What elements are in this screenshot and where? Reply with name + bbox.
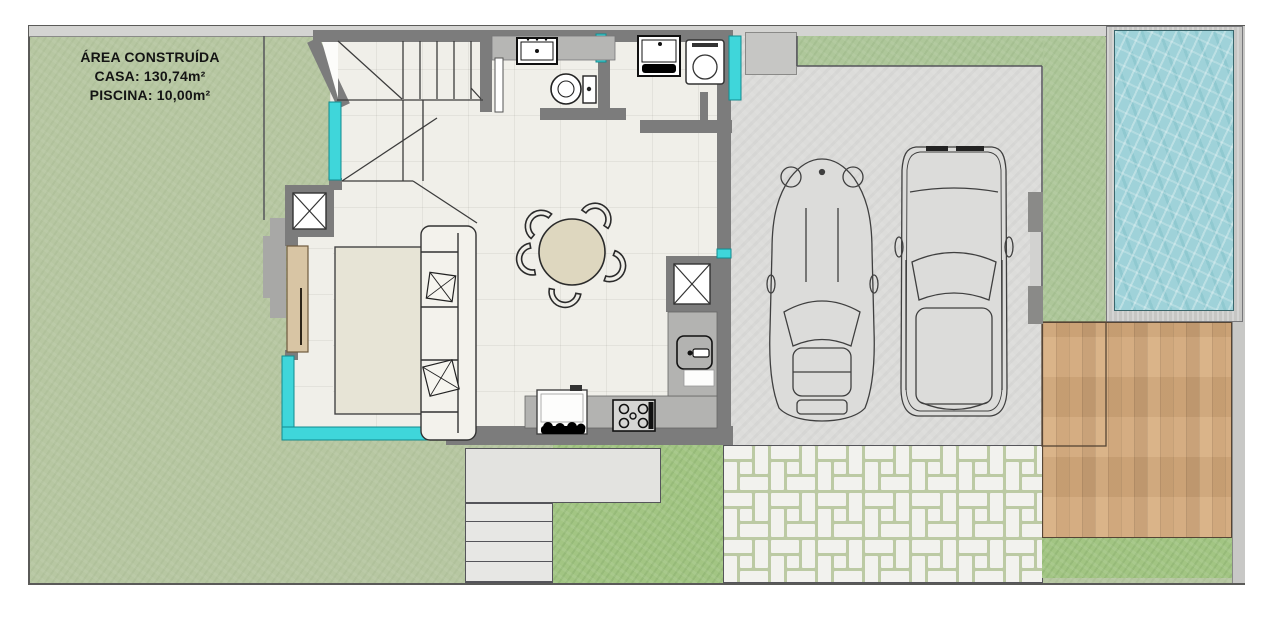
stair-window <box>329 102 341 180</box>
sofa-pillow-1 <box>426 272 455 301</box>
plan-linework <box>0 0 1280 625</box>
staircase <box>337 41 483 223</box>
entry-door <box>287 246 308 352</box>
suv-car <box>895 146 1013 416</box>
dining-set <box>514 197 630 310</box>
laundry-window <box>729 36 741 100</box>
column-kitchen <box>666 256 718 312</box>
entry-pad <box>263 218 286 318</box>
sports-car <box>767 159 878 421</box>
sofa <box>421 226 476 440</box>
dining-table <box>539 219 605 285</box>
bath-door <box>495 58 503 112</box>
floor-plan: ÁREA CONSTRUÍDA CASA: 130,74m² PISCINA: … <box>0 0 1280 625</box>
living-side-window <box>282 356 294 430</box>
kitchen <box>525 312 717 434</box>
kitchen-window <box>717 249 731 258</box>
bathroom <box>492 36 615 112</box>
laundry <box>638 36 724 84</box>
stove <box>613 400 655 431</box>
sofa-pillow-2 <box>423 360 459 396</box>
living-room <box>335 226 476 440</box>
deck-inner-edge <box>1042 322 1106 446</box>
gate-posts <box>1028 192 1043 324</box>
column-living <box>285 185 334 237</box>
toilet-bowl <box>551 74 581 104</box>
